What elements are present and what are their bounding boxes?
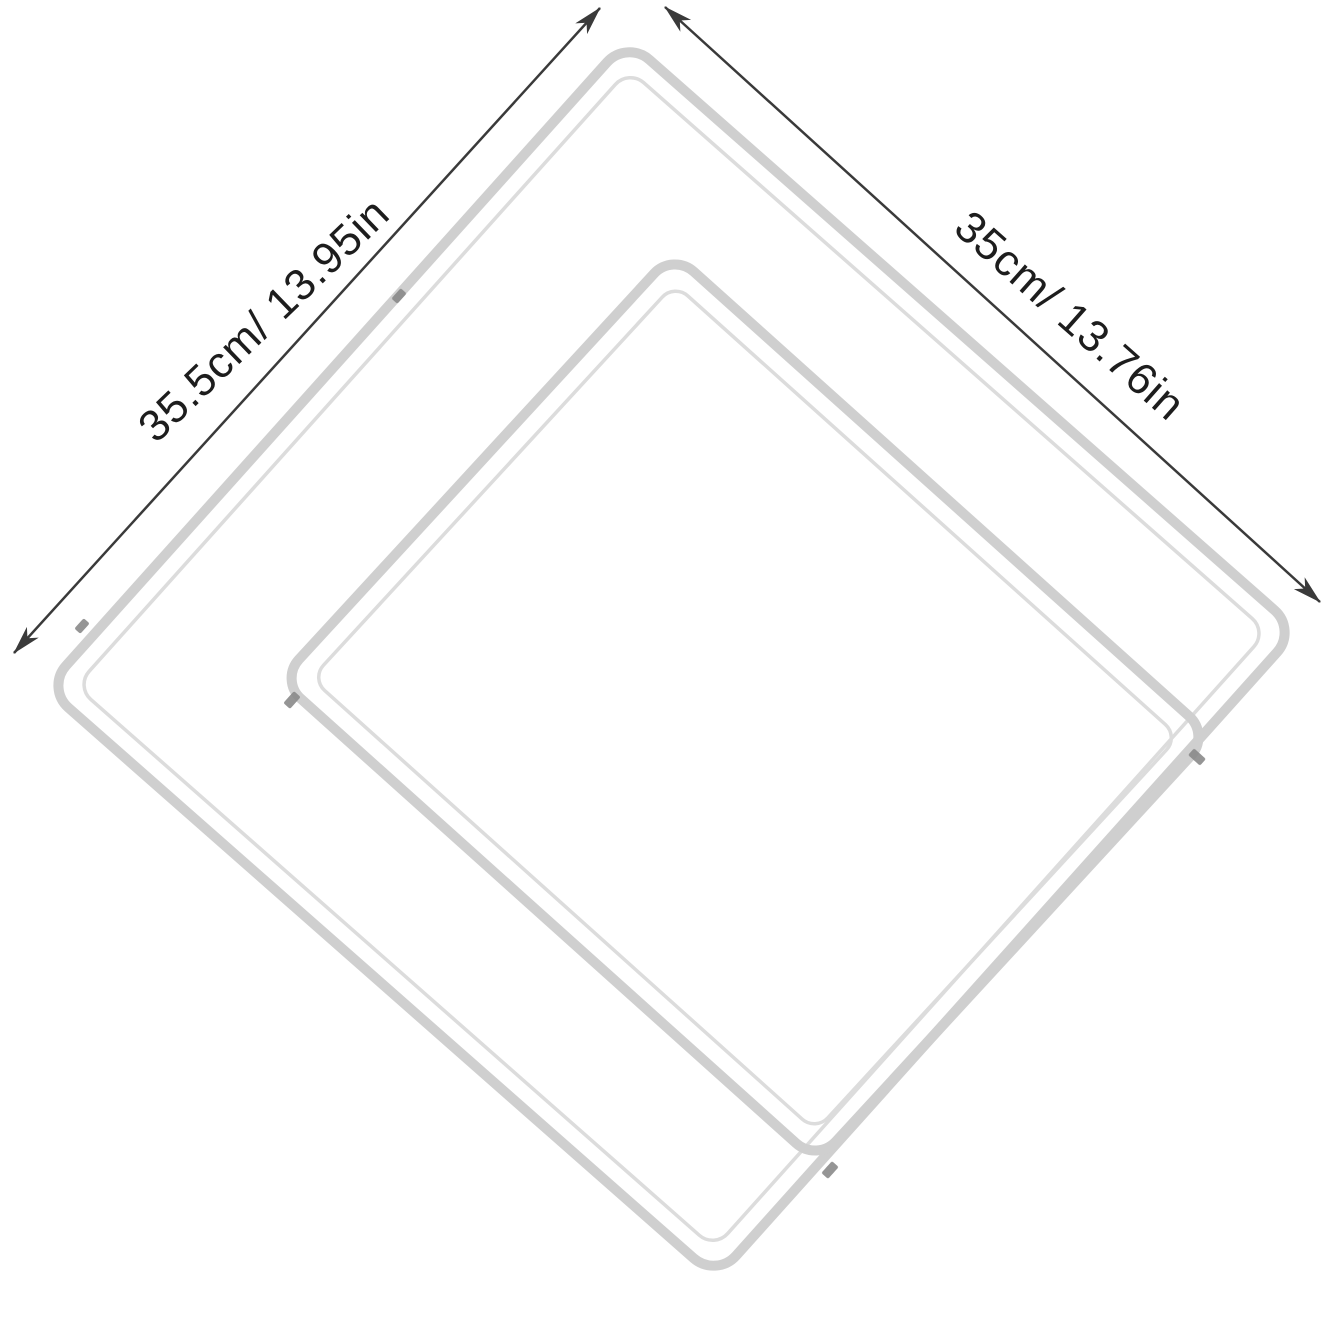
outer-shelf-inner-loop: [76, 70, 1267, 1249]
inner-shelf-frame: [280, 253, 1210, 1162]
clip-icon: [74, 618, 89, 634]
dimension-arrow-right: [665, 7, 1320, 602]
dimension-arrow-left: [14, 8, 600, 653]
product-dimension-diagram: 35.5cm/ 13.95in 35cm/ 13.76in: [0, 0, 1329, 1319]
metal-clips: [74, 288, 1206, 1179]
dimension-label-left: 35.5cm/ 13.95in: [129, 188, 399, 451]
outer-shelf-frame: [46, 40, 1297, 1278]
dimension-label-right: 35cm/ 13.76in: [945, 202, 1194, 430]
outer-shelf: [46, 40, 1297, 1278]
inner-shelf: [280, 253, 1210, 1162]
wire-rack-figure: 35.5cm/ 13.95in 35cm/ 13.76in: [0, 0, 1329, 1319]
